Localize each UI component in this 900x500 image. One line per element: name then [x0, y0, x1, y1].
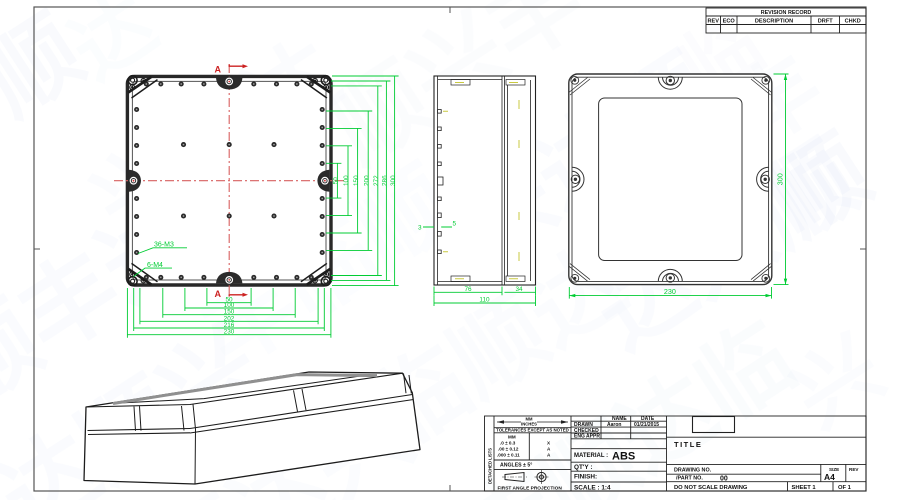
svg-text:DESCRIPTION: DESCRIPTION [755, 18, 793, 24]
svg-text:ECO: ECO [723, 18, 736, 24]
svg-text:A: A [215, 289, 222, 299]
svg-text:Aaron: Aaron [607, 422, 621, 428]
svg-text:A4: A4 [824, 472, 835, 482]
svg-text:200: 200 [363, 175, 370, 186]
svg-text:.000 ± 0.11: .000 ± 0.11 [497, 452, 520, 457]
svg-text:272: 272 [373, 175, 380, 186]
svg-text:INCHES: INCHES [521, 422, 537, 427]
svg-text:A: A [215, 65, 222, 75]
svg-text:34: 34 [515, 286, 523, 293]
svg-text:00: 00 [720, 475, 728, 482]
svg-text:SCALE : 1:4: SCALE : 1:4 [574, 485, 611, 492]
svg-text:DO NOT SCALE DRAWING: DO NOT SCALE DRAWING [674, 485, 748, 491]
svg-text:REV: REV [849, 467, 859, 472]
svg-text:TOLERANCES EXCEPT AS NOTED: TOLERANCES EXCEPT AS NOTED [496, 428, 569, 433]
svg-text:300: 300 [776, 173, 785, 185]
svg-text:01/21/2015: 01/21/2015 [634, 422, 659, 428]
svg-text:150: 150 [353, 175, 360, 186]
svg-text:FINISH:: FINISH: [574, 474, 597, 481]
svg-text:DETACHED LISTS: DETACHED LISTS [488, 448, 493, 484]
svg-text:DRFT: DRFT [818, 18, 833, 24]
svg-text:DRAWING NO.: DRAWING NO. [674, 468, 712, 474]
svg-text:50: 50 [333, 177, 340, 185]
svg-text:ANGLES ± 5°: ANGLES ± 5° [500, 463, 532, 469]
svg-text:230: 230 [224, 329, 235, 336]
svg-text:REVISION RECORD: REVISION RECORD [761, 10, 812, 16]
svg-text:5: 5 [453, 221, 457, 228]
svg-text:3: 3 [418, 225, 422, 232]
svg-text:ENG APPR: ENG APPR [574, 434, 600, 440]
svg-text:MM: MM [508, 435, 516, 440]
svg-text:ABS: ABS [612, 451, 635, 463]
svg-text:110: 110 [479, 297, 490, 304]
svg-text:TITLE: TITLE [674, 440, 702, 449]
svg-text:230: 230 [664, 287, 676, 296]
svg-text:76: 76 [464, 286, 472, 293]
svg-text:OF 1: OF 1 [838, 485, 852, 491]
svg-text:CHKD: CHKD [845, 18, 861, 24]
svg-text:QT'Y :: QT'Y : [574, 464, 592, 471]
svg-text:/PART NO.: /PART NO. [676, 475, 703, 481]
svg-text:MATERIAL :: MATERIAL : [574, 453, 608, 459]
svg-text:100: 100 [343, 175, 350, 186]
svg-text:300: 300 [390, 175, 397, 186]
svg-text:.00 ± 0.12: .00 ± 0.12 [498, 446, 519, 451]
svg-text:286: 286 [382, 175, 389, 186]
svg-text:SHEET 1: SHEET 1 [792, 485, 817, 491]
svg-text:.0 ± 0.3: .0 ± 0.3 [500, 440, 516, 445]
svg-text:FIRST ANGLE PROJECTION: FIRST ANGLE PROJECTION [498, 486, 563, 492]
svg-text:REV: REV [707, 18, 719, 24]
svg-text:兴: 兴 [777, 320, 900, 446]
